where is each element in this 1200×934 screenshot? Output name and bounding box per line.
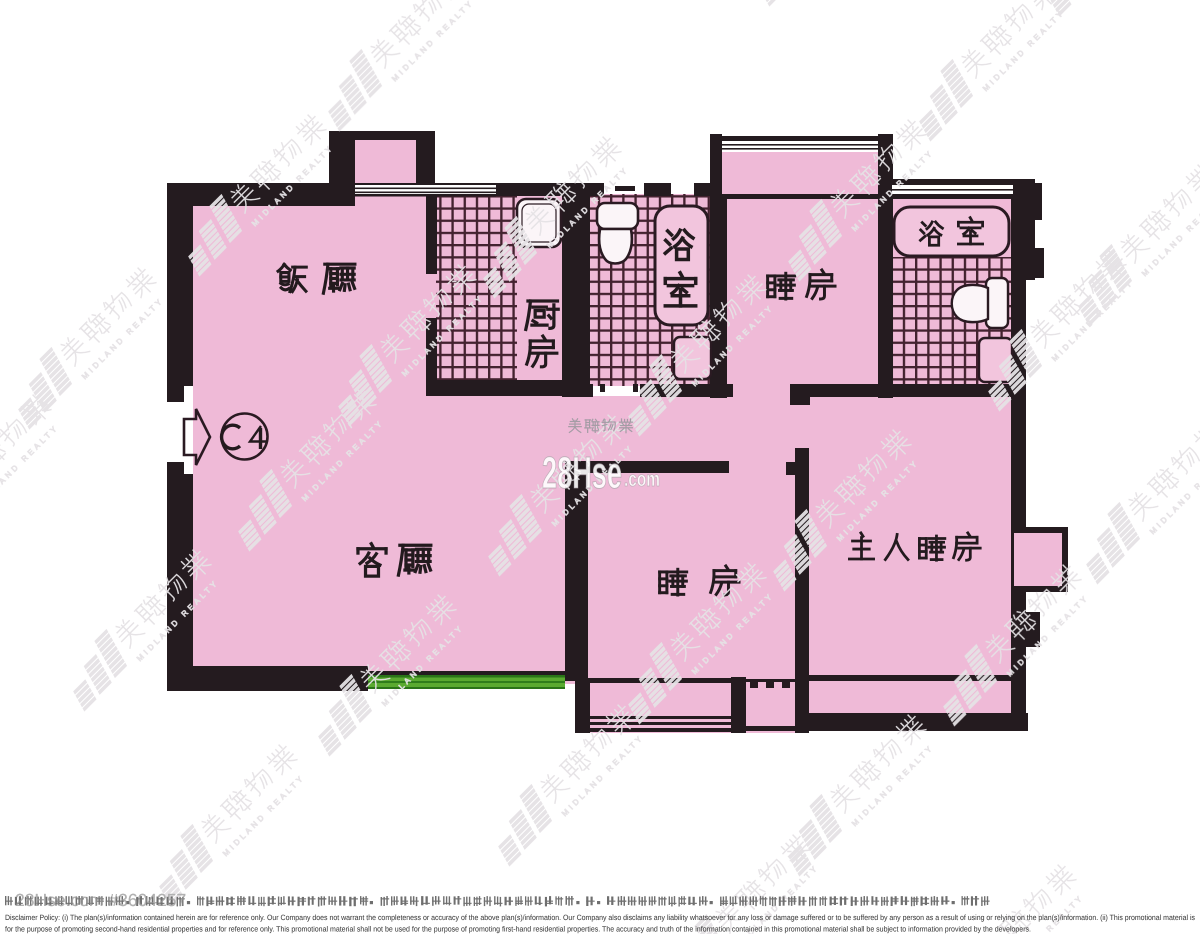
svg-text:Disclaimer Policy: (i) The pla: Disclaimer Policy: (i) The plan(s)/infor…: [5, 913, 1195, 922]
svg-text:.com: .com: [624, 468, 660, 491]
svg-text:28Hse.com #3604257: 28Hse.com #3604257: [15, 890, 186, 910]
svg-text:for the purpose of promoting s: for the purpose of promoting second-hand…: [5, 925, 1031, 934]
svg-text:28Hse: 28Hse: [542, 447, 622, 498]
